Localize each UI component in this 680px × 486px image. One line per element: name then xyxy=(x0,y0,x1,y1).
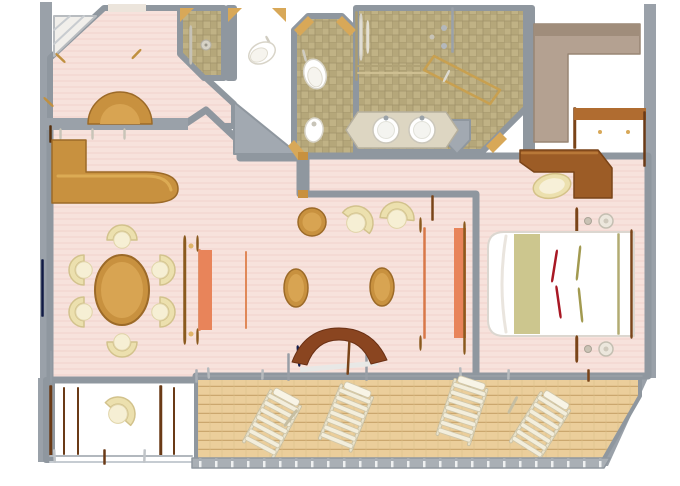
nightstand-bottom-knob xyxy=(585,346,592,353)
dining-table-top xyxy=(101,262,143,318)
side-table-round-top xyxy=(303,213,322,232)
balcony-door-track xyxy=(196,370,197,382)
bed-duvet xyxy=(488,232,634,336)
closet-floor xyxy=(526,8,532,150)
wc1-trim-right xyxy=(272,8,286,22)
vanity-counter xyxy=(346,112,458,148)
study-armchair xyxy=(99,390,142,432)
study-shelf-left xyxy=(50,386,52,456)
vanity-faucet-2 xyxy=(420,116,425,121)
closet-drawer-handle-1 xyxy=(598,130,602,134)
sofa-left-back xyxy=(184,236,186,344)
tub-faucet-2 xyxy=(441,43,447,49)
floor-plan-layers xyxy=(38,2,656,468)
tub-drain xyxy=(430,35,435,40)
bathtub-inner xyxy=(367,21,369,53)
nightstand-bottom-lamp-dot xyxy=(604,347,609,352)
coffee-table-2-top xyxy=(374,273,390,301)
balcony-door-panel-4 xyxy=(508,370,509,379)
vanity-faucet-1 xyxy=(384,116,389,121)
sofa-left-arm-top xyxy=(197,236,198,251)
sofa-right-arm-south xyxy=(420,336,421,350)
sofa-left-arm-bottom xyxy=(197,329,198,344)
sofa-left-back-cushion xyxy=(199,250,212,330)
wall-study-corner xyxy=(50,350,52,384)
nightstand-top-knob xyxy=(585,218,592,225)
entry-door-threshold xyxy=(108,4,146,12)
balcony-door-wood-right xyxy=(588,370,589,381)
wall-bath-divider xyxy=(452,8,453,52)
sofa-left-dot-2 xyxy=(189,332,194,337)
wetbar-sink-1 xyxy=(60,129,61,139)
console-cabinet xyxy=(432,196,433,220)
bathtub xyxy=(360,14,362,60)
corridor-doorjamb-south xyxy=(298,190,308,198)
sofa-right-body xyxy=(424,228,425,338)
closet-drawers-top xyxy=(574,108,646,120)
wetbar-counter xyxy=(50,126,51,142)
closet-drawer-handle-2 xyxy=(626,130,630,134)
nightstand-top xyxy=(576,208,578,234)
balcony-door-panel-2 xyxy=(262,370,263,379)
sofa-right-arm-north xyxy=(420,218,421,232)
nightstand-bottom xyxy=(576,336,578,362)
vanity-sink-2-basin xyxy=(414,122,431,139)
wc2-floor xyxy=(294,16,356,156)
study-door-panel-1 xyxy=(54,450,56,462)
floor-plan-page xyxy=(0,0,680,486)
nightstand-top-lamp-dot xyxy=(604,219,609,224)
sofa-right-wood xyxy=(464,222,465,354)
coffee-table-1-top xyxy=(288,274,304,302)
wc2-bidet-dot xyxy=(312,122,317,127)
wetbar-sink-2 xyxy=(92,129,93,139)
closet-wood-right xyxy=(644,112,645,166)
wetbar-sink-3 xyxy=(124,129,125,139)
bed-headboard-wood xyxy=(631,230,632,338)
closet-counter xyxy=(534,24,640,142)
corridor-doorjamb-north xyxy=(298,152,308,160)
study-shelf-right xyxy=(160,386,162,456)
bed-headboard-cushion xyxy=(618,234,619,334)
floor-plan-canvas xyxy=(0,0,680,486)
balcony-railing xyxy=(192,458,610,468)
study-door-wood xyxy=(104,450,105,464)
vanity-sink-1-basin xyxy=(378,122,395,139)
shower-tray xyxy=(190,26,192,64)
closet-counter-top-band xyxy=(534,24,640,36)
bed-khaki-runner xyxy=(514,234,540,334)
tv-screen xyxy=(42,260,43,316)
tub-platform xyxy=(356,12,357,80)
sofa-left-dot-1 xyxy=(189,244,194,249)
shower-drain-dot xyxy=(205,44,208,47)
tub-faucet-1 xyxy=(441,25,447,31)
balcony-door-panel-1 xyxy=(208,368,210,378)
study-door-panel-2 xyxy=(144,450,145,462)
